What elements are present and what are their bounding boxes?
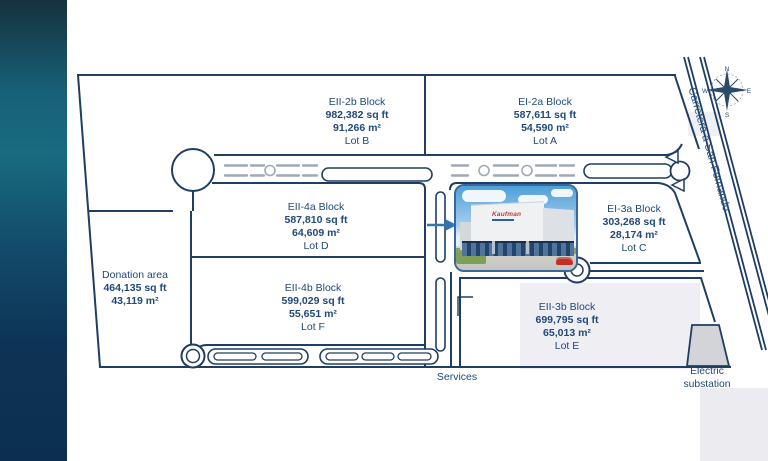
electric-substation-shape	[687, 325, 729, 366]
block-label-ei-2a: EI-2a Block 587,611 sq ft 54,590 m² Lot …	[514, 96, 576, 148]
building-pillar	[492, 241, 495, 254]
avenue-top-line	[214, 144, 682, 155]
compass-west-label: W	[702, 88, 709, 95]
photo-cloud	[462, 190, 506, 202]
bottom-road-medians	[208, 349, 438, 364]
building-pillar	[526, 241, 529, 254]
avenue-medians	[225, 162, 690, 182]
compass-north-label: N	[725, 66, 730, 73]
photo-cloud	[551, 189, 573, 197]
red-car	[556, 257, 573, 265]
compass-south-label: S	[725, 112, 730, 119]
block-label-donation-area: Donation area 464,135 sq ft 43,119 m²	[102, 269, 168, 308]
electric-substation-label: Electric substation	[675, 366, 739, 391]
building-photo: Kaufman	[454, 184, 578, 272]
block-label-eii-3b: EII-3b Block 699,795 sq ft 65,013 m² Lot…	[535, 301, 598, 353]
roundabout-large	[172, 149, 214, 191]
services-label: Services	[437, 371, 477, 383]
block-label-ei-3a: EI-3a Block 303,268 sq ft 28,174 m² Lot …	[602, 203, 665, 255]
block-label-eii-4b: EII-4b Block 599,029 sq ft 55,651 m² Lot…	[281, 282, 344, 334]
services-road-medians	[436, 192, 445, 351]
block-label-eii-2b: EII-2b Block 982,382 sq ft 91,266 m² Lot…	[325, 96, 388, 148]
site-plan-page: N E S W Kaufman EII-2b Block 982,382 sq …	[0, 0, 768, 461]
block-label-eii-4a: EII-4a Block 587,810 sq ft 64,609 m² Lot…	[284, 201, 347, 253]
roundabout-southwest	[182, 345, 205, 368]
ei3a-bottom-road	[590, 263, 704, 271]
building-glass-band	[462, 241, 574, 256]
compass-east-label: E	[747, 88, 752, 95]
building-logo: Kaufman	[492, 211, 521, 221]
